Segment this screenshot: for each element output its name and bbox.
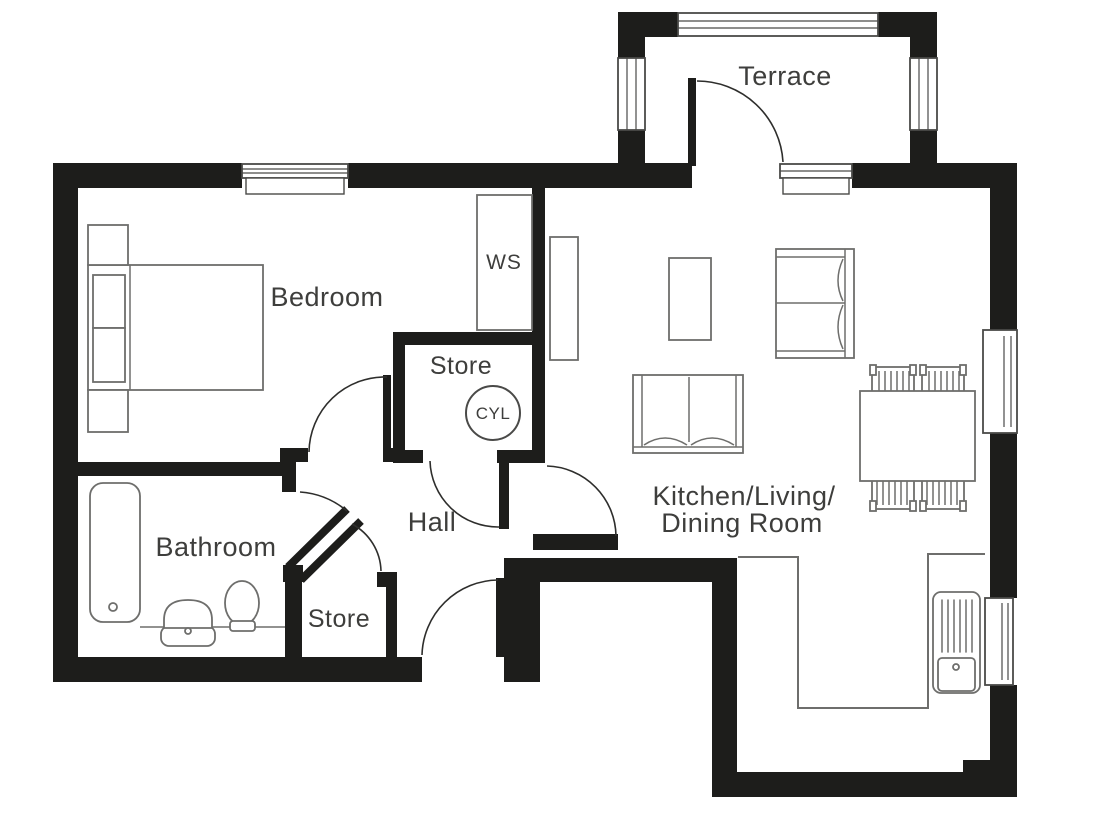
wall-store2-left <box>285 580 302 657</box>
front-door <box>422 578 504 657</box>
pillow <box>93 275 125 328</box>
wall-hall-kitchen <box>504 558 737 582</box>
windows <box>242 13 1017 685</box>
label-wardrobe: WS <box>486 251 522 274</box>
wall-top-mid <box>348 163 618 188</box>
terrace-corner-tr-v <box>910 12 937 58</box>
bathtub <box>90 483 140 622</box>
label-terrace: Terrace <box>738 61 832 91</box>
bedside-table-top <box>88 225 128 265</box>
wall-bedroom-kitchen <box>532 188 545 463</box>
terrace-railing <box>678 13 878 36</box>
terrace-left-lower <box>618 130 645 163</box>
terrace-right-window <box>910 58 937 130</box>
wall-bedroom-hall-left <box>280 448 308 462</box>
wash-basin <box>161 600 215 646</box>
dining-table <box>860 391 975 481</box>
terrace-kitchen-window <box>780 164 852 194</box>
label-kitchen-line2: Dining Room <box>661 508 823 538</box>
bedside-table-bottom <box>88 390 128 432</box>
wall-store-top-left <box>393 332 405 450</box>
kitchen-sink <box>933 592 980 693</box>
bedroom-window <box>242 164 348 194</box>
bathroom-door <box>300 492 381 571</box>
wall-right-upper <box>990 188 1017 330</box>
label-bedroom: Bedroom <box>270 282 383 312</box>
wall-bathroom-top <box>78 462 288 476</box>
sink-drain <box>953 664 959 670</box>
wall-bottom-left <box>53 657 422 682</box>
terrace-corner-tl-v <box>618 12 645 58</box>
bedroom-door <box>309 375 391 452</box>
wall-left <box>53 163 78 682</box>
terrace-left-window <box>618 58 645 130</box>
label-store-top: Store <box>430 352 492 380</box>
pillow <box>93 328 125 382</box>
wall-kitchen-bottom <box>712 772 1017 797</box>
tall-cabinet <box>550 237 578 360</box>
right-wall-lower-window <box>985 598 1013 685</box>
sink-basin <box>938 658 975 691</box>
coffee-table <box>669 258 711 340</box>
terrace-right-lower <box>910 130 937 163</box>
label-store-bottom: Store <box>308 605 370 633</box>
label-hall: Hall <box>408 507 457 537</box>
label-kitchen-line1: Kitchen/Living/ <box>652 481 835 511</box>
sofa-right <box>776 249 854 358</box>
sofa-bottom <box>633 375 743 453</box>
wall-store-top <box>393 332 543 345</box>
wall-step <box>963 760 990 772</box>
double-bed <box>88 265 263 390</box>
terrace-door <box>688 78 783 166</box>
wall-kitchen-left <box>712 582 737 797</box>
floor-plan-page: Terrace Bedroom WS Store CYL Hall Bathro… <box>0 0 1097 822</box>
wall-right-lower <box>990 685 1017 797</box>
wall-under-terrace <box>618 163 692 188</box>
wall-jog <box>282 462 296 492</box>
wall-top-left <box>53 163 242 188</box>
wall-right-mid <box>990 433 1017 598</box>
label-bathroom: Bathroom <box>155 532 276 562</box>
floor-plan-drawing: Terrace Bedroom WS Store CYL Hall Bathro… <box>0 0 1097 822</box>
right-wall-upper-window <box>983 330 1017 433</box>
toilet <box>225 581 259 631</box>
label-cylinder: CYL <box>476 404 511 423</box>
kitchen-door <box>533 466 618 550</box>
wall-store-bottom-a <box>393 450 423 463</box>
wall-top-right <box>852 163 1017 188</box>
wall-store2-right <box>386 572 397 657</box>
